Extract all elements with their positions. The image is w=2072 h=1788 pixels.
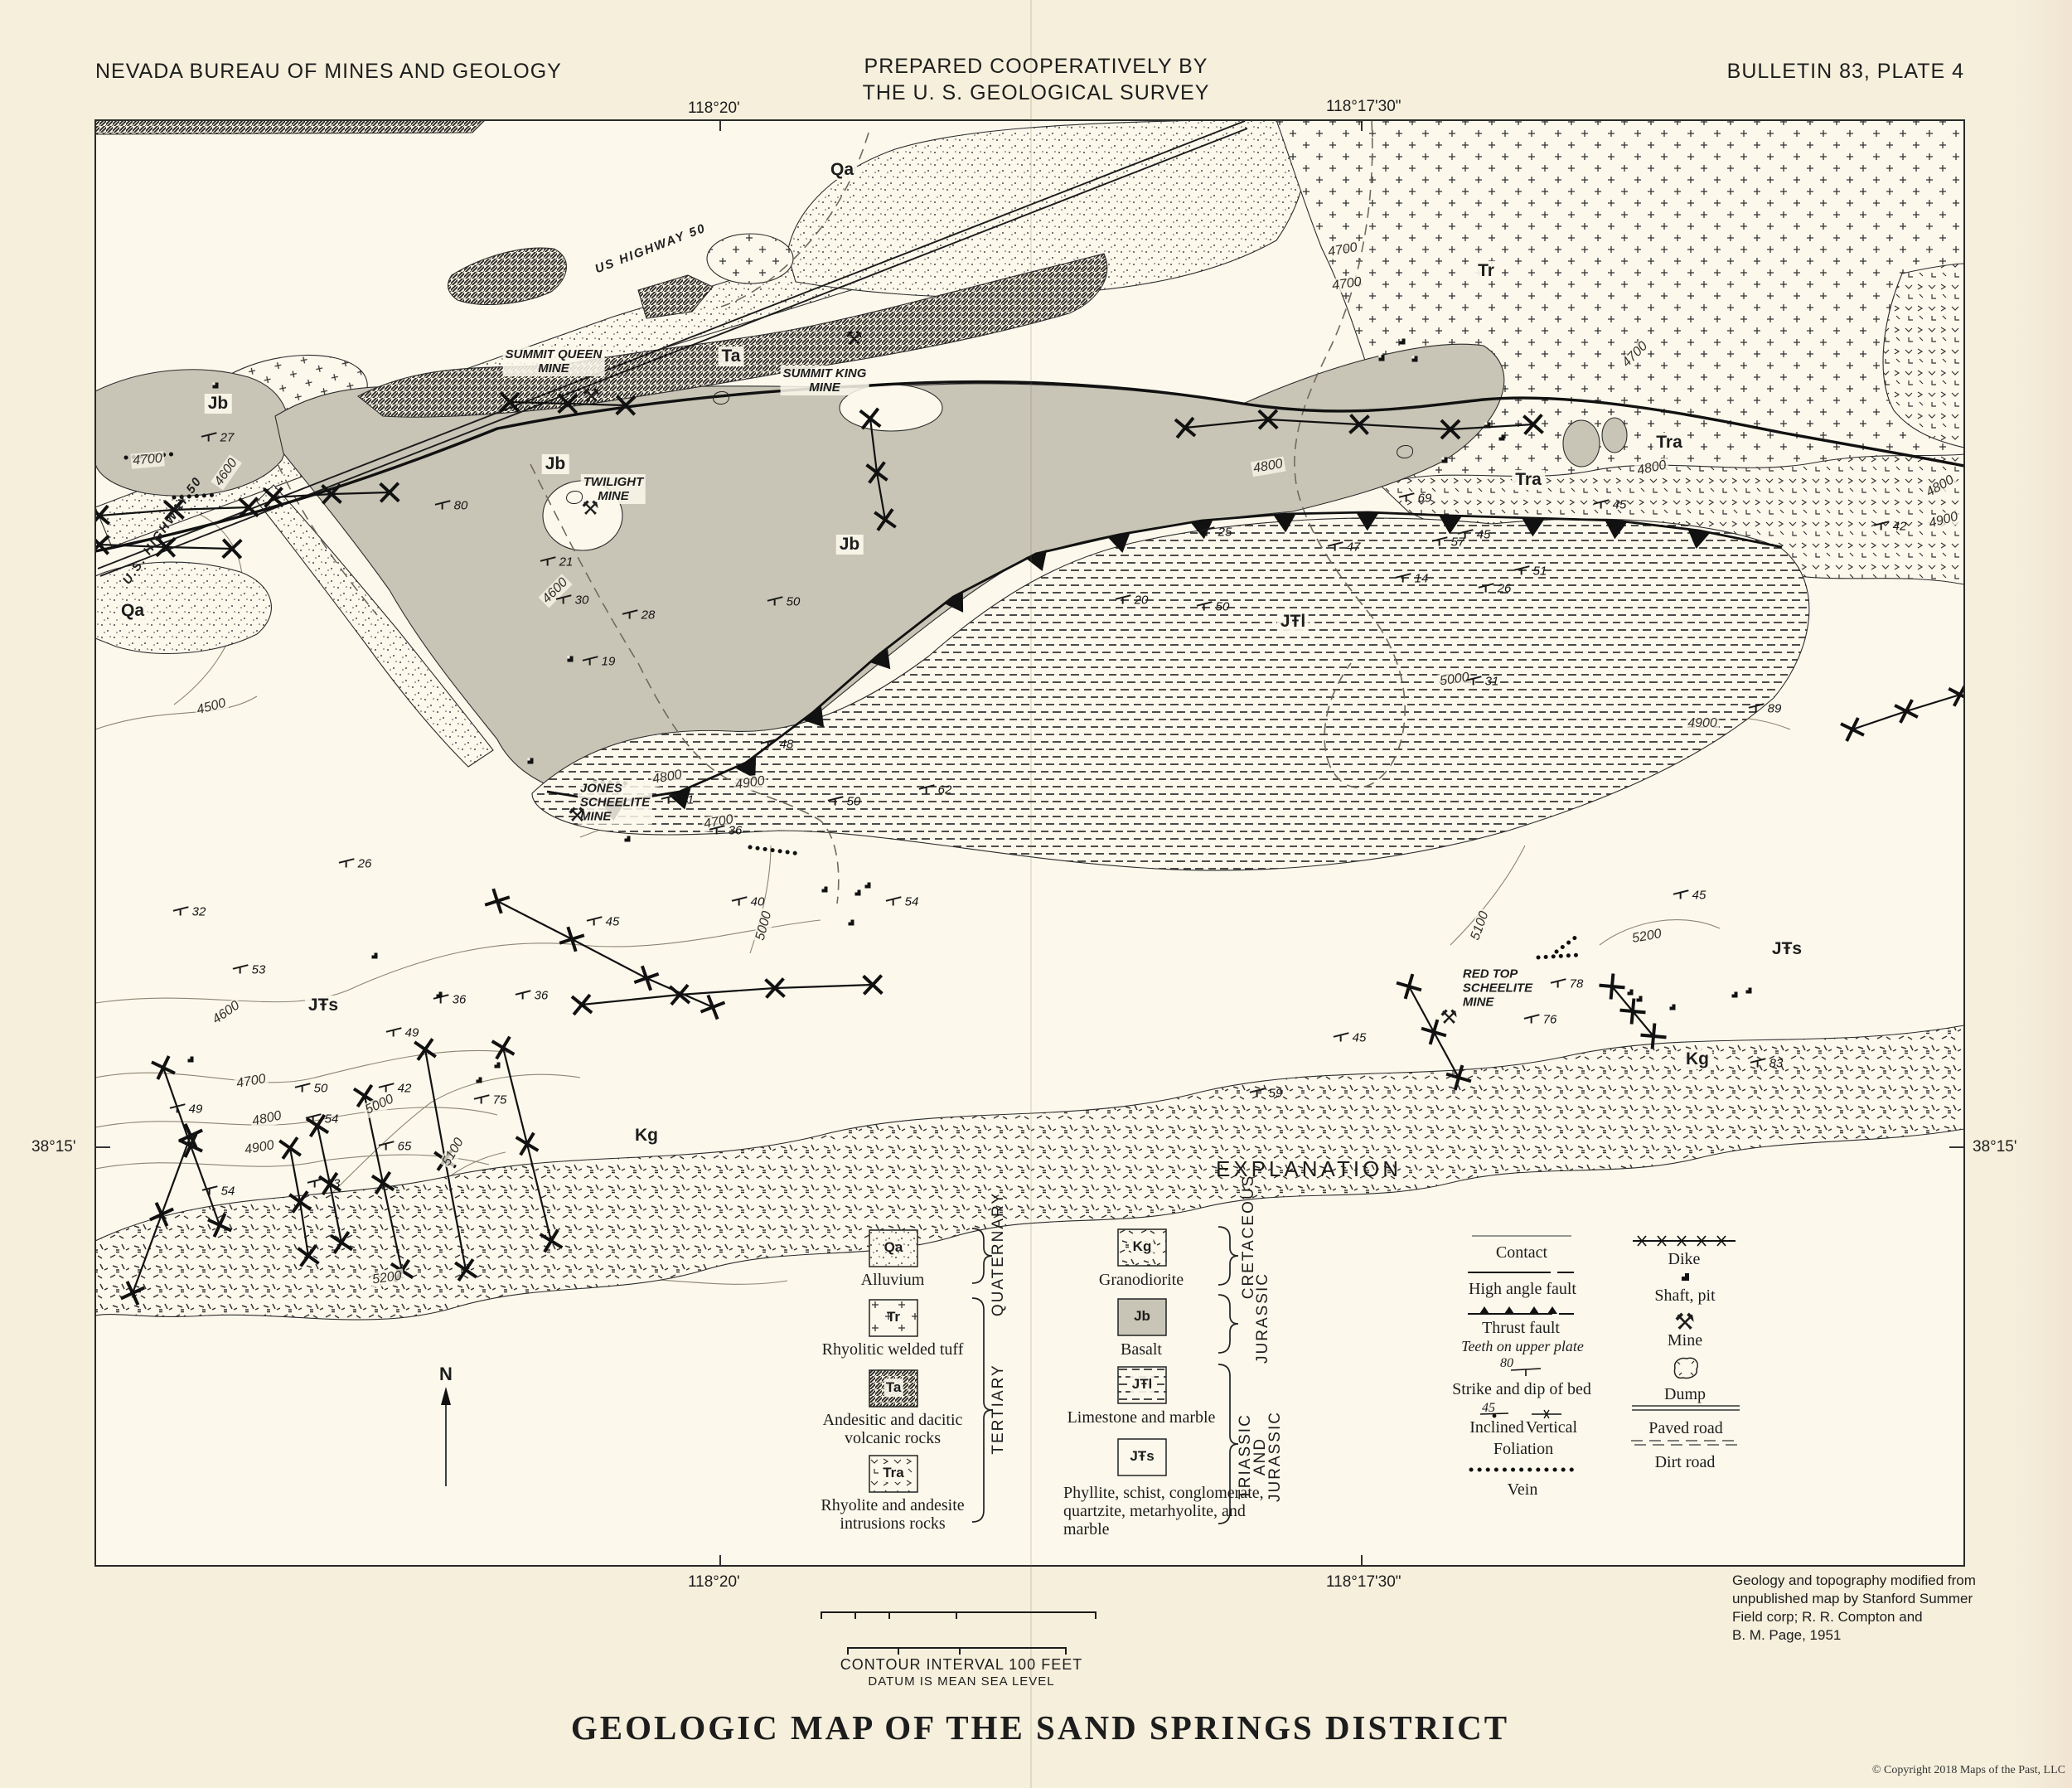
map-title: GEOLOGIC MAP OF THE SAND SPRINGS DISTRIC…: [571, 1708, 1509, 1747]
coord-lat-left: 38°15': [31, 1138, 76, 1156]
legend-label-phyllite: Phyllite, schist, conglomerate, quartzit…: [1063, 1484, 1264, 1538]
legend-code-tra: Tra: [881, 1464, 906, 1482]
legend-label-limestone: Limestone and marble: [1067, 1408, 1216, 1427]
legend-label-basalt: Basalt: [1121, 1340, 1162, 1359]
vertical-label: Vertical: [1526, 1418, 1577, 1437]
high-angle-fault-symbol: [1468, 1270, 1576, 1275]
contour-interval-note: CONTOUR INTERVAL 100 FEET: [840, 1656, 1082, 1674]
datum-note: DATUM IS MEAN SEA LEVEL: [868, 1674, 1054, 1689]
mine-label: Mine: [1668, 1331, 1702, 1350]
credits: Geology and topography modified from unp…: [1732, 1572, 1976, 1645]
legend-label-rhyolite-intrusions: Rhyolite and andesite intrusions rocks: [821, 1496, 964, 1533]
dirt-road-symbol: [1631, 1439, 1739, 1447]
north-arrow-icon: [438, 1385, 454, 1489]
km-scale-bar: [847, 1647, 1067, 1649]
legend-code-qa: Qa: [884, 1238, 903, 1257]
legend-code-ta: Ta: [884, 1379, 903, 1397]
dump-label: Dump: [1664, 1385, 1706, 1404]
vein-symbol: [1468, 1466, 1576, 1474]
paved-road-label: Paved road: [1648, 1419, 1722, 1438]
thrust-fault-label: Thrust fault: [1482, 1319, 1560, 1338]
north-arrow: N: [438, 1364, 454, 1494]
legend-label-granodiorite: Granodiorite: [1099, 1271, 1184, 1289]
contact-symbol: [1472, 1233, 1571, 1238]
paved-road-symbol: [1632, 1404, 1740, 1412]
high-angle-fault-label: High angle fault: [1469, 1280, 1576, 1299]
coord-bottom-right: 118°17'30": [1326, 1573, 1402, 1592]
era-jurassic2: JURASSIC: [1266, 1411, 1285, 1502]
legend-code-jb: Jb: [1134, 1307, 1150, 1325]
strike-dip-label: Strike and dip of bed: [1452, 1380, 1591, 1399]
dike-label: Dike: [1668, 1250, 1701, 1269]
coord-top-left: 118°20': [688, 99, 740, 118]
foliation-label: Foliation: [1493, 1440, 1553, 1459]
era-quaternary: QUATERNARY: [990, 1192, 1008, 1316]
map-sheet: NEVADA BUREAU OF MINES AND GEOLOGY PREPA…: [0, 0, 2072, 1788]
coord-top-right: 118°17'30": [1326, 98, 1402, 116]
shaft-pit-label: Shaft, pit: [1654, 1286, 1715, 1306]
geologic-map-canvas: [0, 0, 2072, 1788]
contact-label: Contact: [1496, 1243, 1547, 1262]
dike-symbol: [1633, 1235, 1736, 1247]
north-label: N: [439, 1364, 453, 1384]
vein-label: Vein: [1508, 1480, 1538, 1500]
dirt-road-label: Dirt road: [1655, 1453, 1716, 1472]
legend-code-kg: Kg: [1131, 1238, 1154, 1256]
era-jurassic: JURASSIC: [1254, 1272, 1272, 1364]
coord-lat-right: 38°15': [1973, 1138, 2017, 1156]
legend-code-jts: JŦs: [1130, 1447, 1154, 1466]
copyright: © Copyright 2018 Maps of the Past, LLC: [1872, 1764, 2065, 1777]
thrust-fault-symbol: [1468, 1305, 1576, 1316]
coord-bottom-left: 118°20': [688, 1573, 740, 1592]
thrust-note: Teeth on upper plate: [1461, 1338, 1584, 1355]
shaft-pit-symbol: [1682, 1273, 1689, 1281]
legend-label-andesitic: Andesitic and dacitic volcanic rocks: [823, 1411, 963, 1447]
legend-label-alluvium: Alluvium: [861, 1271, 925, 1289]
era-tertiary: TERTIARY: [990, 1364, 1008, 1454]
red-mark: [1989, 620, 1997, 624]
strike-dip-symbol: [1509, 1364, 1546, 1378]
legend-label-tuff: Rhyolitic welded tuff: [822, 1340, 964, 1359]
feet-scale-bar: [821, 1611, 1097, 1613]
legend-code-jtl: JŦl: [1130, 1375, 1155, 1393]
legend-code-tr: Tr: [887, 1308, 900, 1326]
inclined-label: Inclined: [1469, 1418, 1524, 1437]
dump-symbol: [1669, 1354, 1702, 1381]
